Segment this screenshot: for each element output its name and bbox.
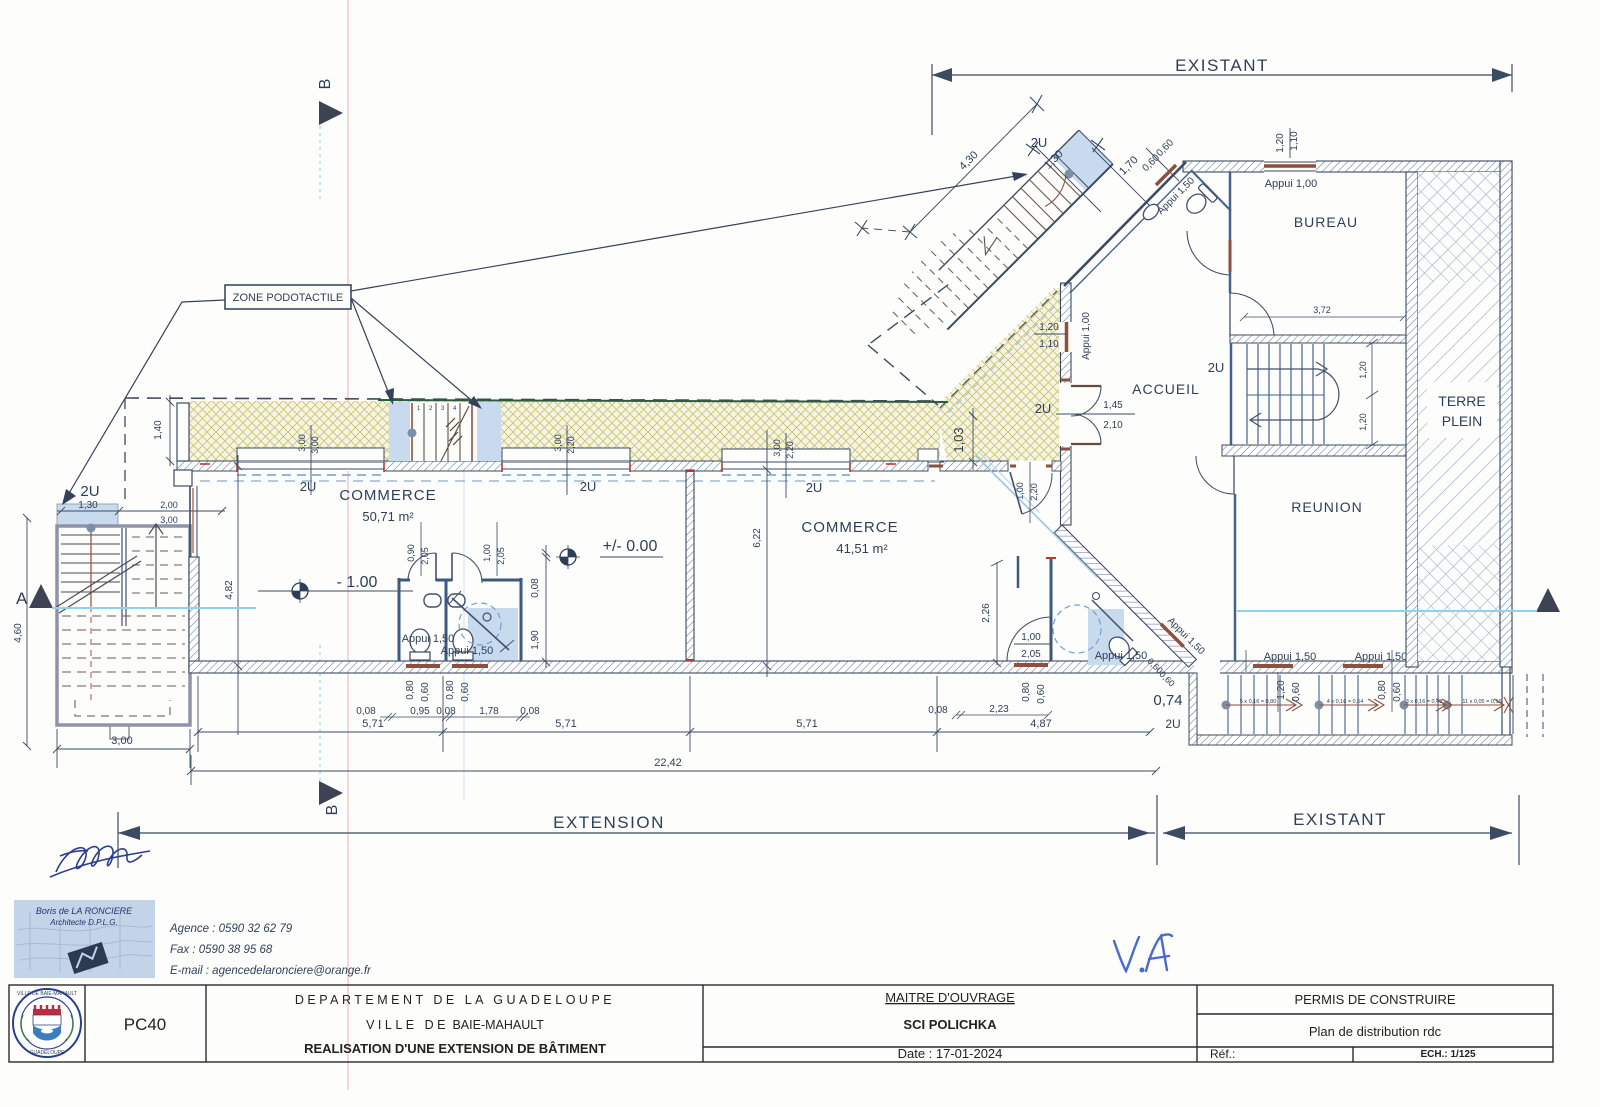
svg-text:2,23: 2,23 xyxy=(989,704,1009,715)
svg-text:E-mail : agencedelaronciere@or: E-mail : agencedelaronciere@orange.fr xyxy=(170,965,372,977)
svg-text:1,30: 1,30 xyxy=(78,500,98,511)
svg-text:A: A xyxy=(16,589,28,608)
svg-text:Fax : 0590 38 95 68: Fax : 0590 38 95 68 xyxy=(170,944,273,956)
svg-text:0,80: 0,80 xyxy=(1377,680,1388,700)
svg-text:2,20: 2,20 xyxy=(785,441,795,459)
svg-text:2,00: 2,00 xyxy=(160,500,178,510)
svg-text:4,87: 4,87 xyxy=(1030,718,1051,730)
svg-text:MAITRE D'OUVRAGE: MAITRE D'OUVRAGE xyxy=(885,990,1015,1005)
svg-text:4 x 0,16 = 0,64: 4 x 0,16 = 0,64 xyxy=(1327,699,1364,705)
svg-text:0,08: 0,08 xyxy=(356,706,376,717)
svg-text:Appui 1,50: Appui 1,50 xyxy=(1355,651,1408,663)
svg-text:1,03: 1,03 xyxy=(951,427,966,452)
svg-text:Appui 1,00: Appui 1,00 xyxy=(1265,178,1318,190)
svg-text:VILLE DE BAIE-MAHAULT: VILLE DE BAIE-MAHAULT xyxy=(17,991,77,997)
svg-text:0,60: 0,60 xyxy=(460,682,471,702)
svg-text:0,08: 0,08 xyxy=(530,578,541,598)
svg-text:0,08: 0,08 xyxy=(436,706,456,717)
svg-text:4,60: 4,60 xyxy=(13,623,24,643)
svg-text:B: B xyxy=(317,79,334,90)
svg-text:3,00: 3,00 xyxy=(772,439,782,457)
svg-text:2,05: 2,05 xyxy=(420,547,430,565)
svg-text:1,90: 1,90 xyxy=(530,630,541,650)
svg-text:Appui 1,50: Appui 1,50 xyxy=(1095,650,1148,662)
svg-text:5,71: 5,71 xyxy=(796,718,817,730)
svg-text:3,00: 3,00 xyxy=(310,436,320,454)
svg-text:5 x 0,16 = 0,80: 5 x 0,16 = 0,80 xyxy=(1240,699,1277,705)
svg-text:ZONE PODOTACTILE: ZONE PODOTACTILE xyxy=(233,292,343,304)
svg-text:5,71: 5,71 xyxy=(555,718,576,730)
svg-text:Agence : 0590 32 62 79: Agence : 0590 32 62 79 xyxy=(169,923,293,935)
svg-text:1,00: 1,00 xyxy=(482,544,492,562)
svg-text:1,20: 1,20 xyxy=(1358,361,1368,379)
svg-text:2U: 2U xyxy=(806,480,823,495)
svg-text:2U: 2U xyxy=(1031,135,1048,150)
svg-text:0,60: 0,60 xyxy=(1291,682,1302,702)
svg-text:2U: 2U xyxy=(1035,401,1052,416)
svg-text:B: B xyxy=(324,805,341,816)
svg-text:0,80: 0,80 xyxy=(1021,682,1032,702)
svg-text:Appui 1,50: Appui 1,50 xyxy=(441,645,494,657)
svg-text:Architecte D.P.L.G.: Architecte D.P.L.G. xyxy=(49,918,117,927)
svg-text:4,30: 4,30 xyxy=(957,149,981,173)
svg-text:0,08: 0,08 xyxy=(520,706,540,717)
svg-text:1,20: 1,20 xyxy=(1358,413,1368,431)
svg-text:0,80: 0,80 xyxy=(405,680,416,700)
svg-text:1,40: 1,40 xyxy=(153,420,164,440)
svg-text:3,00: 3,00 xyxy=(111,735,132,747)
svg-text:2U: 2U xyxy=(580,479,597,494)
svg-text:1,78: 1,78 xyxy=(479,706,499,717)
svg-text:0,60: 0,60 xyxy=(1154,137,1176,159)
svg-text:2,26: 2,26 xyxy=(981,603,992,623)
svg-text:1,00: 1,00 xyxy=(1021,632,1041,643)
svg-text:EXISTANT: EXISTANT xyxy=(1175,56,1269,75)
svg-text:3,00: 3,00 xyxy=(553,434,563,452)
svg-text:4,82: 4,82 xyxy=(224,580,235,600)
svg-text:1,00: 1,00 xyxy=(1015,482,1025,500)
svg-text:2,20: 2,20 xyxy=(566,436,576,454)
svg-text:2U: 2U xyxy=(1165,717,1180,731)
svg-text:ECH.: 1/125: ECH.: 1/125 xyxy=(1420,1049,1475,1060)
svg-text:1,45: 1,45 xyxy=(1103,400,1123,411)
svg-text:0,60: 0,60 xyxy=(420,682,431,702)
svg-text:EXISTANT: EXISTANT xyxy=(1293,810,1387,829)
svg-text:Date : 17-01-2024: Date : 17-01-2024 xyxy=(898,1046,1003,1061)
svg-text:BUREAU: BUREAU xyxy=(1294,214,1358,230)
svg-text:3,72: 3,72 xyxy=(1313,305,1331,315)
svg-text:3,00: 3,00 xyxy=(297,434,307,452)
svg-text:Appui 1,00: Appui 1,00 xyxy=(1081,312,1092,360)
svg-text:COMMERCE: COMMERCE xyxy=(801,519,898,536)
svg-text:REUNION: REUNION xyxy=(1291,499,1363,515)
svg-text:0,60: 0,60 xyxy=(1392,682,1403,702)
svg-text:Appui 1,50: Appui 1,50 xyxy=(1264,651,1317,663)
svg-text:1,10: 1,10 xyxy=(1289,131,1300,151)
svg-text:1,70: 1,70 xyxy=(1117,154,1141,178)
svg-text:ACCUEIL: ACCUEIL xyxy=(1132,381,1200,397)
svg-text:Boris de LA RONCIERE: Boris de LA RONCIERE xyxy=(36,906,133,916)
svg-text:SCI POLICHKA: SCI POLICHKA xyxy=(903,1017,997,1032)
svg-text:1,20: 1,20 xyxy=(1275,133,1286,153)
svg-text:1,10: 1,10 xyxy=(1039,339,1059,350)
svg-text:0,90: 0,90 xyxy=(406,544,416,562)
svg-text:REALISATION D'UNE EXTENSION DE: REALISATION D'UNE EXTENSION DE BÂTIMENT xyxy=(304,1041,606,1056)
svg-text:VILLE DE BAIE-MAHAULT: VILLE DE BAIE-MAHAULT xyxy=(366,1018,544,1032)
svg-text:PLEIN: PLEIN xyxy=(1442,413,1482,429)
svg-text:1,20: 1,20 xyxy=(1039,322,1059,333)
svg-text:0,74: 0,74 xyxy=(1153,692,1182,709)
svg-text:50,71 m²: 50,71 m² xyxy=(362,509,414,524)
svg-text:PC40: PC40 xyxy=(124,1015,167,1034)
svg-text:3 x 0,16 = 0,48: 3 x 0,16 = 0,48 xyxy=(1406,699,1443,705)
svg-text:2U: 2U xyxy=(1208,360,1225,375)
svg-text:Réf.:: Réf.: xyxy=(1210,1047,1235,1061)
svg-text:3,00: 3,00 xyxy=(160,515,178,525)
svg-text:2U: 2U xyxy=(80,483,99,500)
svg-text:TERRE: TERRE xyxy=(1438,393,1485,409)
svg-text:GUADELOUPE: GUADELOUPE xyxy=(30,1050,65,1056)
svg-text:2,05: 2,05 xyxy=(496,547,506,565)
svg-text:Appui 1,50: Appui 1,50 xyxy=(402,633,455,645)
svg-text:2,20: 2,20 xyxy=(1029,483,1039,501)
svg-text:11 x 0,05 = 0,16: 11 x 0,05 = 0,16 xyxy=(1462,699,1501,705)
svg-text:41,51 m²: 41,51 m² xyxy=(836,541,888,556)
svg-text:Plan de distribution rdc: Plan de distribution rdc xyxy=(1309,1024,1442,1039)
svg-text:0,95: 0,95 xyxy=(410,706,430,717)
svg-text:2U: 2U xyxy=(300,479,317,494)
svg-text:5,71: 5,71 xyxy=(362,718,383,730)
svg-text:22,42: 22,42 xyxy=(654,757,682,769)
svg-text:0,08: 0,08 xyxy=(928,705,948,716)
svg-text:+/- 0.00: +/- 0.00 xyxy=(603,538,658,555)
svg-text:0,80: 0,80 xyxy=(445,680,456,700)
svg-text:6,22: 6,22 xyxy=(752,528,763,548)
svg-text:COMMERCE: COMMERCE xyxy=(339,487,436,504)
svg-text:2,10: 2,10 xyxy=(1103,420,1123,431)
svg-text:DEPARTEMENT DE LA GUADELOUPE: DEPARTEMENT DE LA GUADELOUPE xyxy=(295,993,615,1007)
svg-text:PERMIS DE CONSTRUIRE: PERMIS DE CONSTRUIRE xyxy=(1294,992,1455,1007)
svg-text:- 1.00: - 1.00 xyxy=(337,574,378,591)
svg-text:2,05: 2,05 xyxy=(1021,649,1041,660)
svg-text:EXTENSION: EXTENSION xyxy=(553,813,665,832)
svg-text:0,60: 0,60 xyxy=(1036,684,1047,704)
